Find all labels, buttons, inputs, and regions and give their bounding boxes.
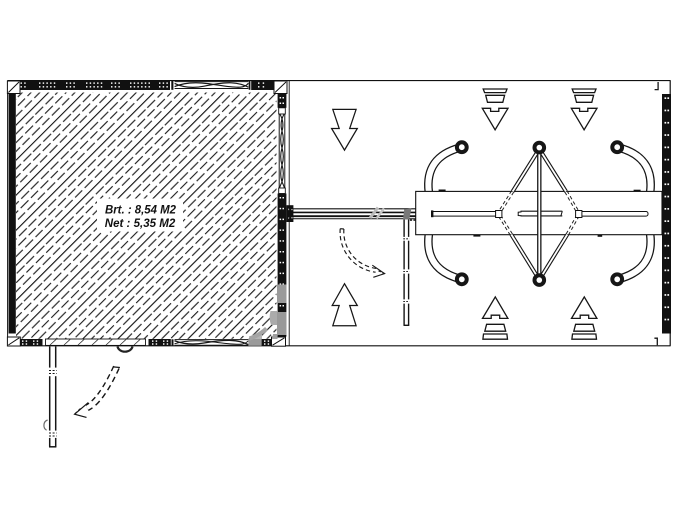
svg-text:Brt. : 8,54 M2: Brt. : 8,54 M2 xyxy=(105,203,176,217)
svg-text:Net : 5,35 M2: Net : 5,35 M2 xyxy=(105,216,176,230)
